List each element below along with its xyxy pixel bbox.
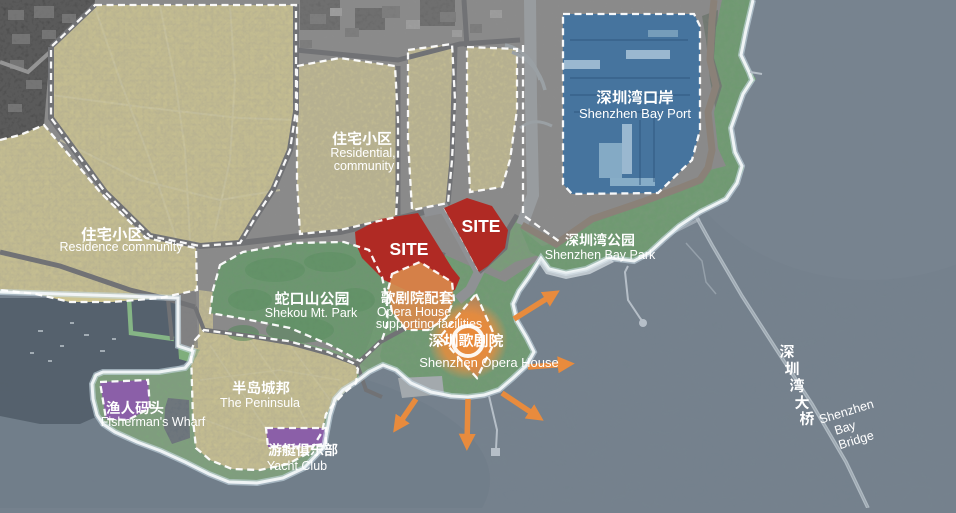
svg-text:Residence community: Residence community bbox=[60, 240, 184, 254]
svg-text:SITE: SITE bbox=[462, 216, 501, 236]
svg-text:supporting facilities: supporting facilities bbox=[376, 317, 482, 331]
svg-text:Shenzhen Bay Park: Shenzhen Bay Park bbox=[545, 248, 656, 262]
svg-text:Fisherman's Wharf: Fisherman's Wharf bbox=[101, 415, 206, 429]
svg-text:Shenzhen Opera House: Shenzhen Opera House bbox=[419, 355, 558, 370]
svg-text:community: community bbox=[334, 159, 395, 173]
svg-text:Yacht Club: Yacht Club bbox=[267, 459, 327, 473]
svg-text:SITE: SITE bbox=[390, 239, 429, 259]
svg-text:The Peninsula: The Peninsula bbox=[220, 396, 300, 410]
svg-text:Shenzhen Bay Port: Shenzhen Bay Port bbox=[579, 106, 691, 121]
svg-text:Residential,: Residential, bbox=[330, 146, 395, 160]
svg-text:Shekou Mt. Park: Shekou Mt. Park bbox=[265, 306, 358, 320]
